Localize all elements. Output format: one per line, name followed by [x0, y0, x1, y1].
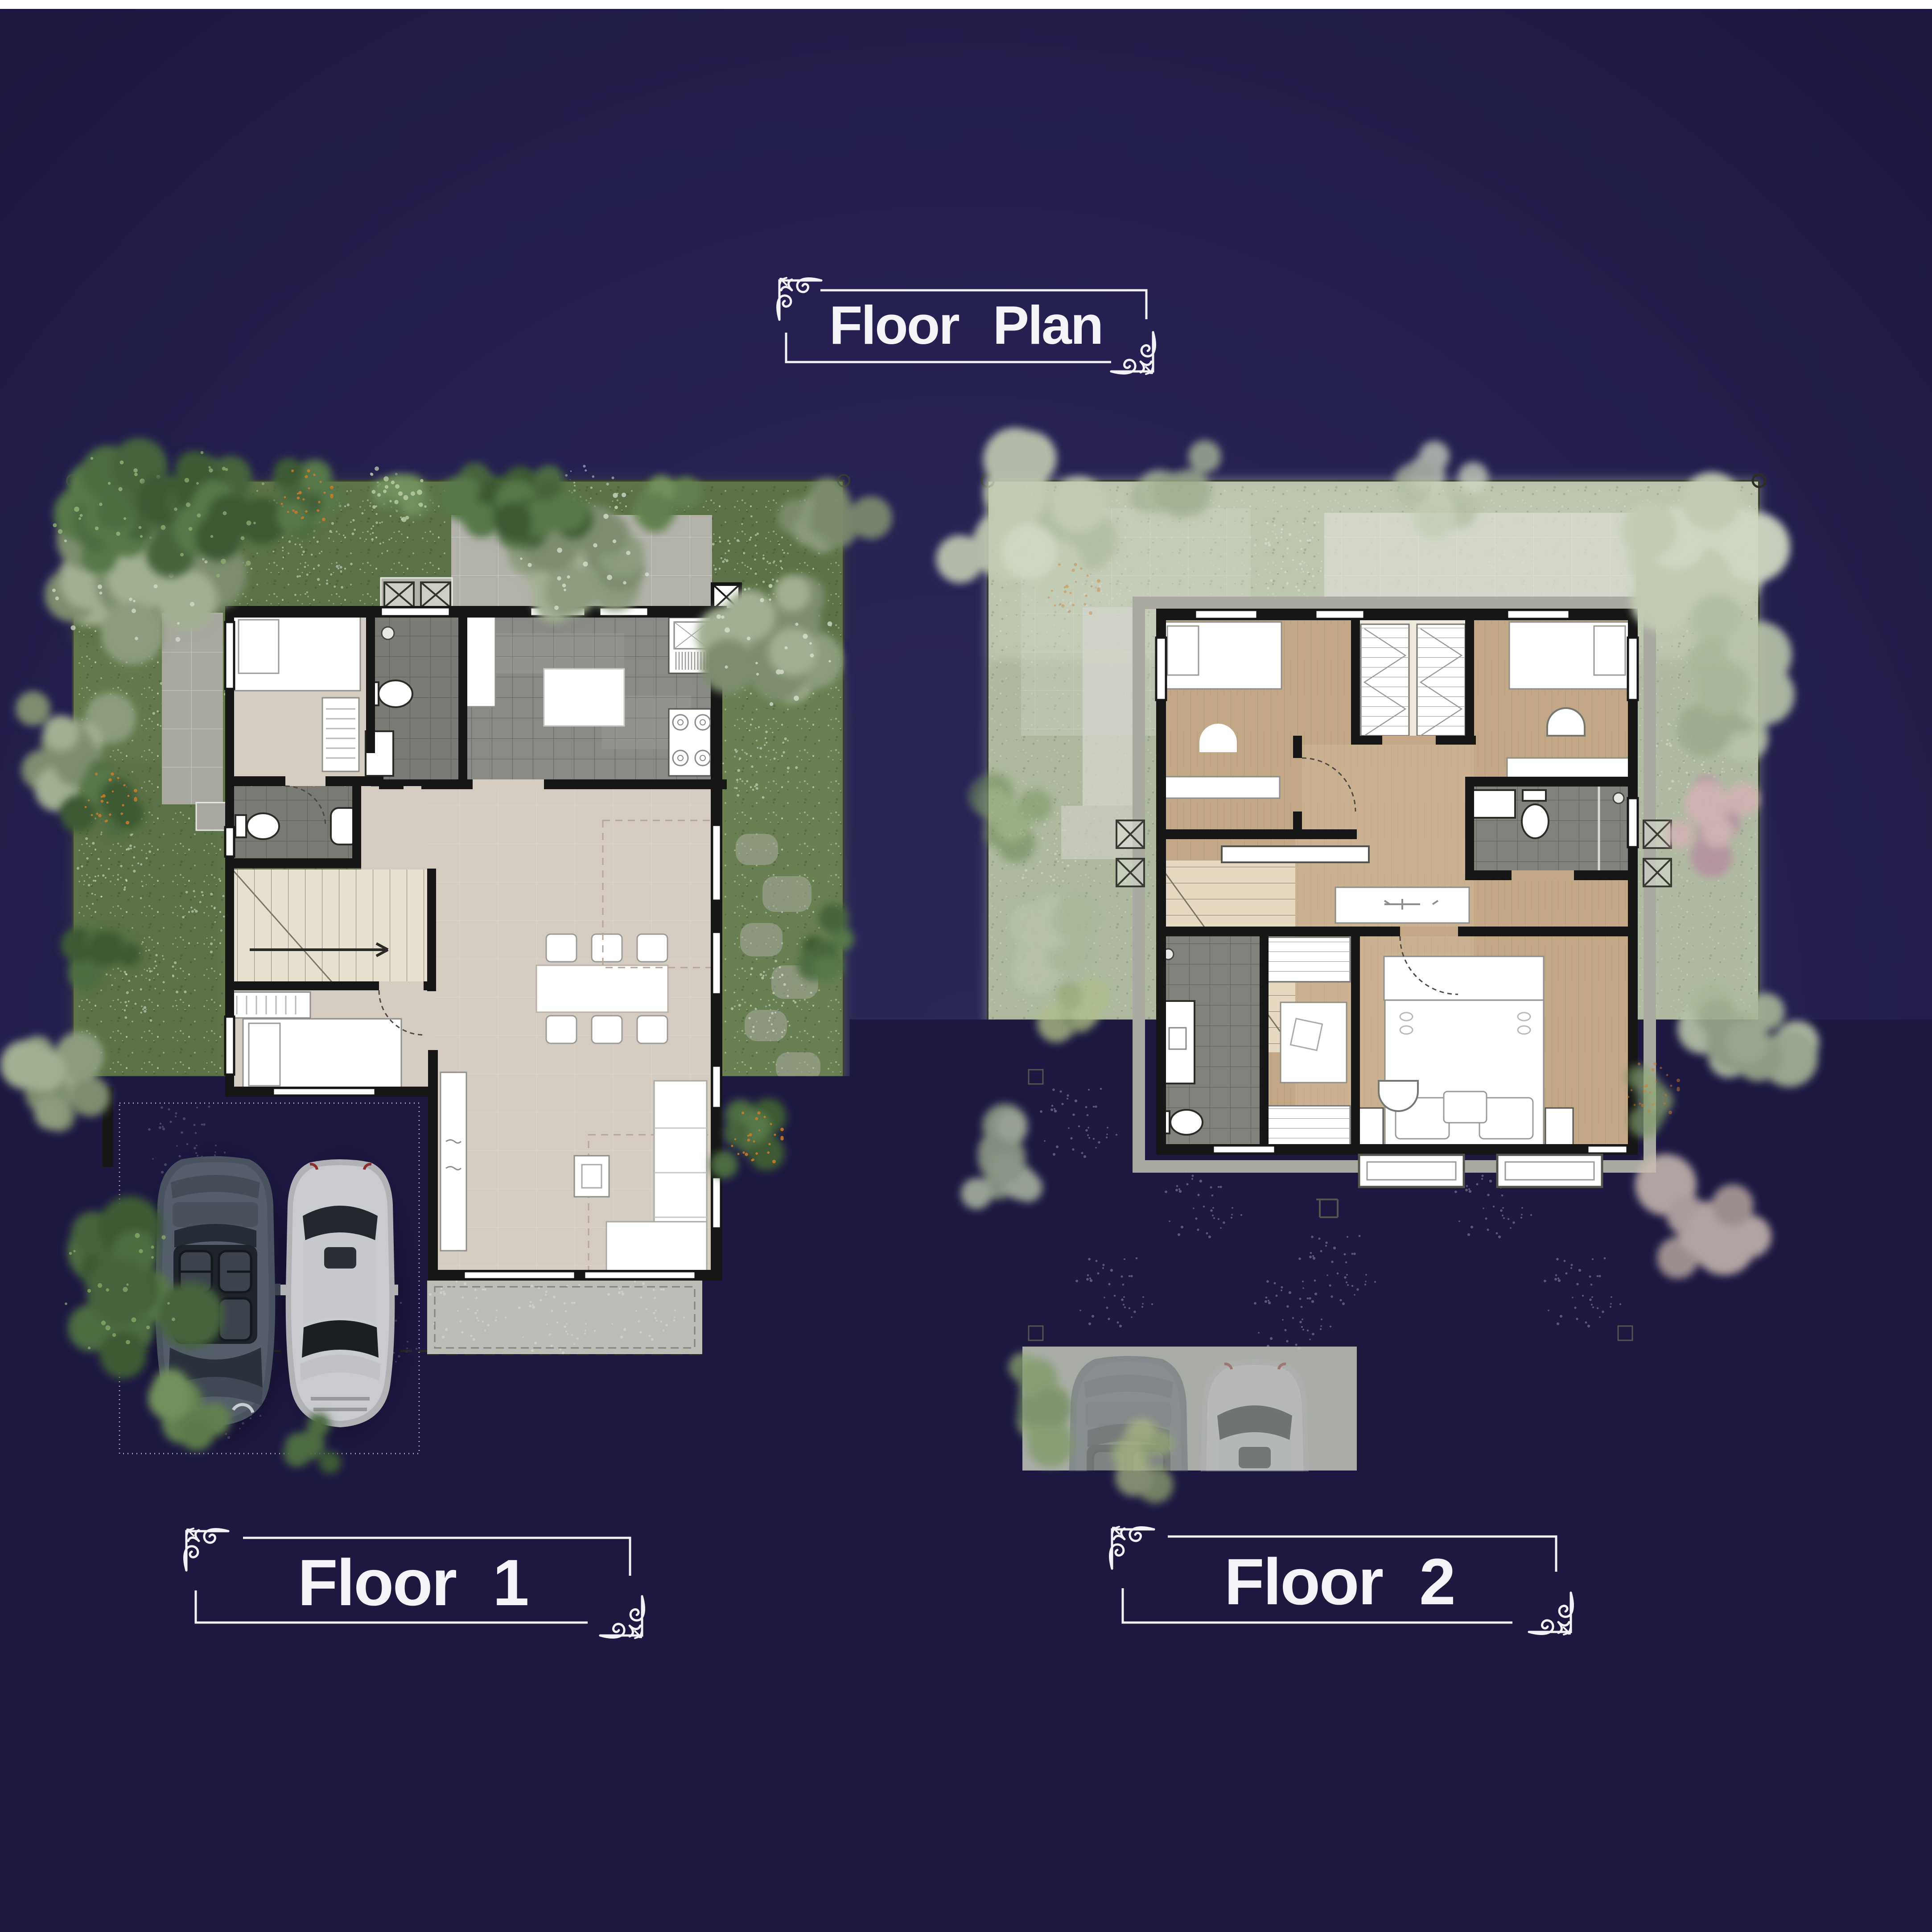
svg-text:Floor 2: Floor 2: [1224, 1545, 1455, 1619]
svg-text:Floor 1: Floor 1: [298, 1546, 528, 1619]
svg-text:Floor Plan: Floor Plan: [829, 295, 1102, 355]
